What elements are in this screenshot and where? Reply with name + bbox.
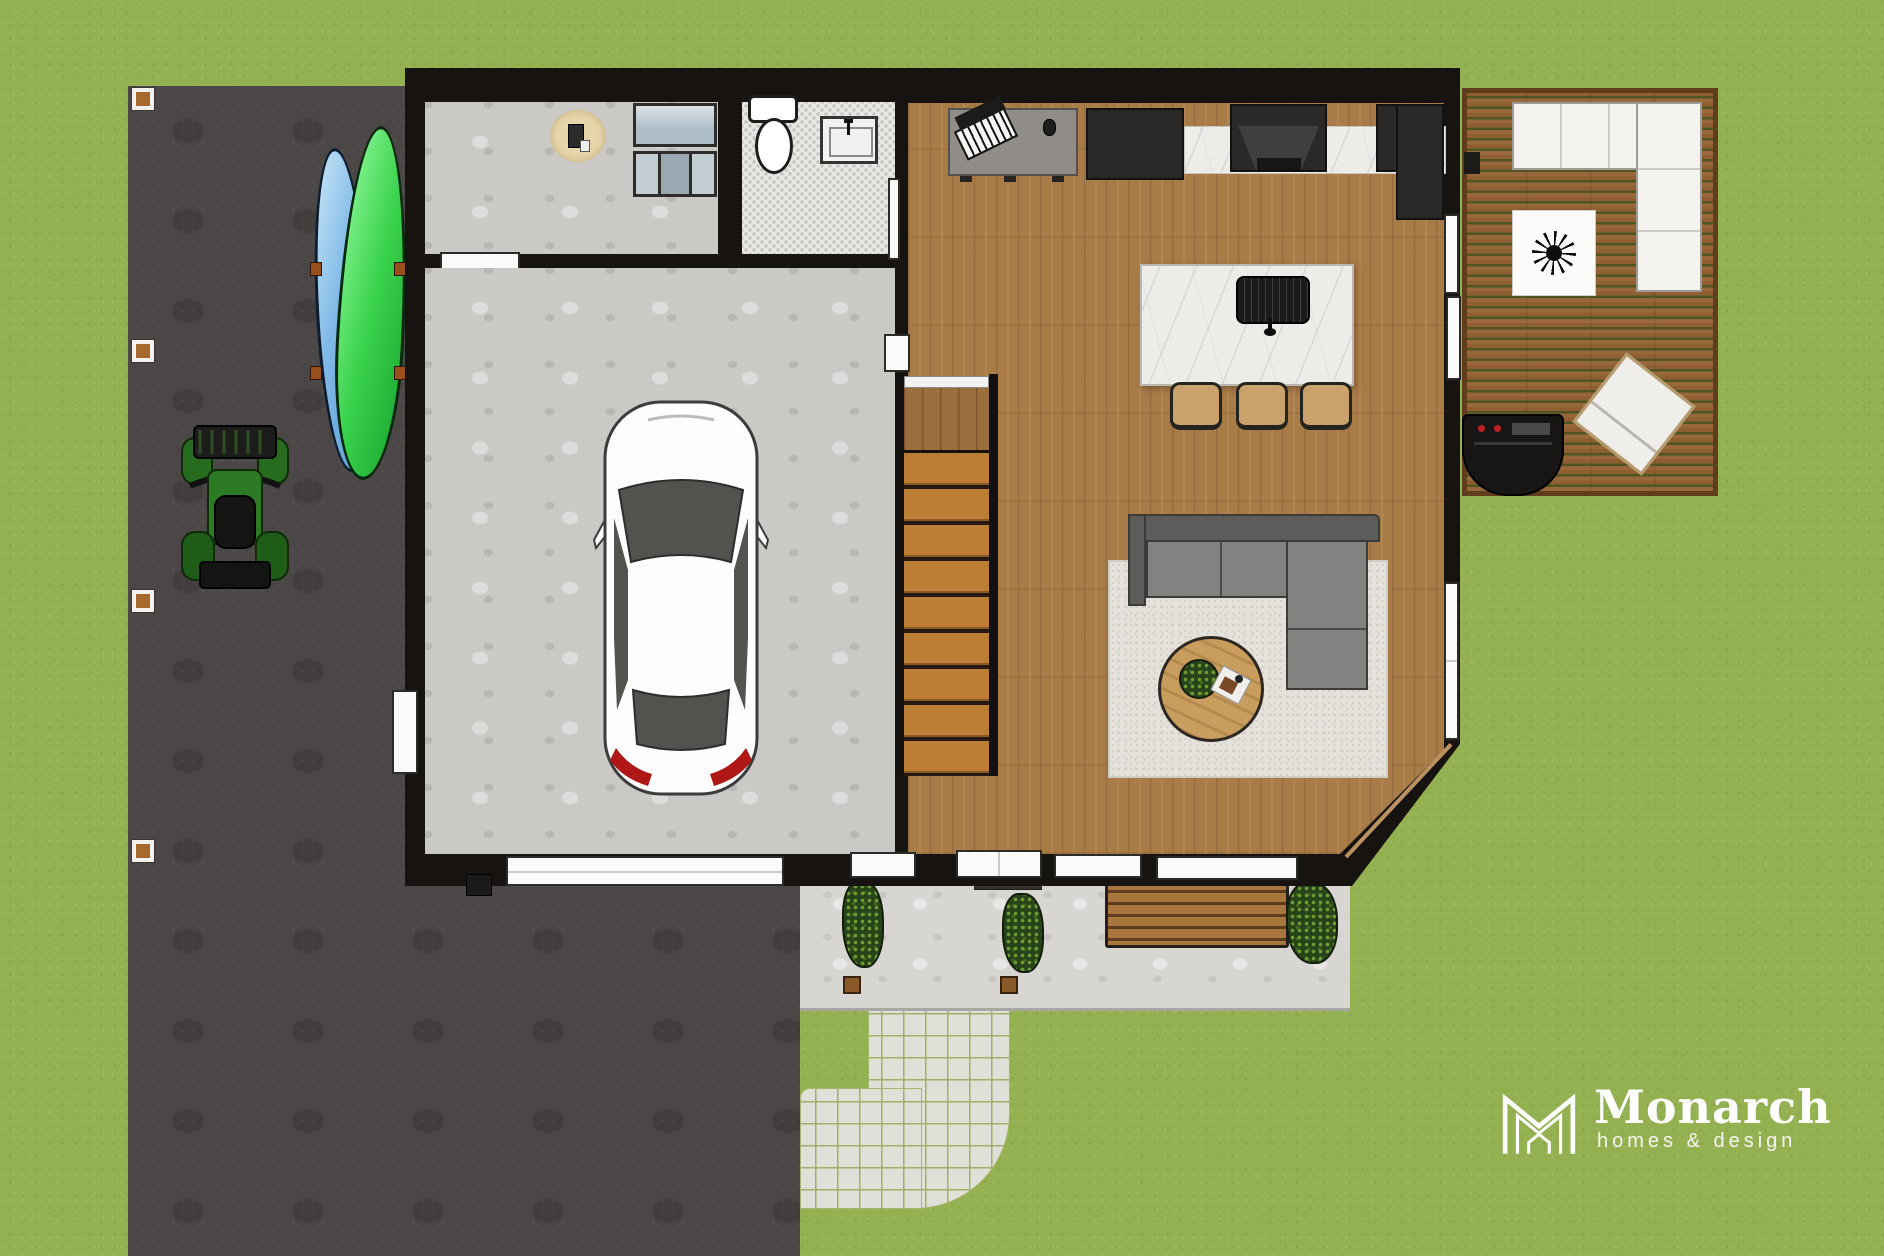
sink-basin — [829, 127, 873, 157]
kayak-mount-bracket — [310, 262, 322, 276]
stair-landing — [904, 388, 989, 453]
atv-quad — [174, 420, 296, 596]
front-door — [956, 850, 1042, 878]
utility-item-part — [580, 140, 590, 152]
desk-leg — [1052, 176, 1064, 182]
bar-stool — [1170, 382, 1222, 430]
bbq-grill — [1462, 414, 1564, 496]
sectional-sofa — [1128, 512, 1380, 666]
sink-faucet-base — [844, 119, 853, 123]
garden-bench — [1105, 878, 1289, 948]
stair-closet-door — [884, 334, 910, 372]
range-hood-vent — [1257, 158, 1301, 170]
washer — [633, 103, 717, 147]
island-faucet-base — [1264, 328, 1276, 336]
tray-item — [1235, 675, 1243, 683]
window-mullion — [1446, 660, 1457, 662]
bar-stool — [1236, 382, 1288, 430]
kayak-mount-bracket — [394, 262, 406, 276]
front-window — [1054, 854, 1142, 878]
stair-stringer — [895, 374, 904, 776]
brand-logo: Monarch homes & design — [1500, 1084, 1820, 1164]
desk-leg — [960, 176, 972, 182]
garage-side-window — [392, 690, 418, 774]
living-side-window — [1444, 582, 1459, 740]
rear-deck — [1462, 88, 1718, 496]
coffee-table — [1158, 636, 1264, 742]
front-porch — [800, 874, 1350, 1011]
sofa-back — [1128, 514, 1380, 542]
sofa-arm — [1128, 514, 1146, 606]
driveway-post — [132, 590, 154, 612]
stair-stringer — [989, 374, 998, 776]
sliding-glass-door-panel — [1444, 214, 1459, 294]
plant-center — [1546, 245, 1562, 261]
walkway-post — [1000, 976, 1018, 994]
driveway-post — [132, 840, 154, 862]
driveway-post — [132, 88, 154, 110]
stair-threshold — [904, 376, 989, 388]
lounge-chair — [1572, 352, 1696, 476]
table-plant — [1179, 659, 1219, 699]
front-door-seam — [998, 852, 1000, 876]
staircase — [895, 374, 998, 776]
desk-leg — [1004, 176, 1016, 182]
m-house-monogram-icon — [1500, 1088, 1578, 1158]
island-sink — [1236, 276, 1310, 324]
bar-stool — [1300, 382, 1352, 430]
floor-plan-rendering: Monarch homes & design — [0, 0, 1884, 1256]
kayak-mount-bracket — [394, 366, 406, 380]
grill-knob — [1494, 425, 1501, 432]
front-window — [1156, 856, 1298, 880]
desk-mouse — [1043, 119, 1056, 136]
bathroom-door — [888, 178, 900, 260]
kayak-mount-bracket — [310, 366, 322, 380]
deck-planter — [1464, 152, 1480, 174]
brand-tagline: homes & design — [1597, 1130, 1796, 1153]
sliding-glass-door-panel — [1446, 296, 1461, 380]
plant-mat — [1512, 210, 1596, 296]
corner-cabinet — [1396, 104, 1444, 220]
porch-planter-shrubs — [1002, 893, 1044, 973]
outdoor-sectional-chaise — [1636, 102, 1702, 292]
sofa-chaise — [1286, 540, 1368, 690]
refrigerator — [1086, 108, 1184, 180]
vanity-sink — [820, 116, 878, 164]
front-window — [850, 852, 916, 878]
stair-treads — [904, 453, 989, 776]
driveway-post — [132, 340, 154, 362]
porch-planter-shrubs — [1286, 882, 1338, 964]
paver-walkway — [800, 1088, 922, 1209]
toilet-bowl — [755, 118, 793, 174]
grill-knob — [1478, 425, 1485, 432]
garage-door — [506, 856, 784, 886]
grill-shelf — [1512, 423, 1550, 435]
garage-door-seam — [508, 871, 782, 873]
porch-planter-shrubs — [842, 880, 884, 968]
walkway-post — [843, 976, 861, 994]
sink-faucet-icon — [847, 121, 850, 135]
brand-name: Monarch — [1594, 1080, 1832, 1134]
grill-lid-line — [1474, 442, 1552, 445]
dryer — [633, 151, 717, 197]
car — [592, 398, 770, 798]
exterior-light — [466, 874, 492, 896]
